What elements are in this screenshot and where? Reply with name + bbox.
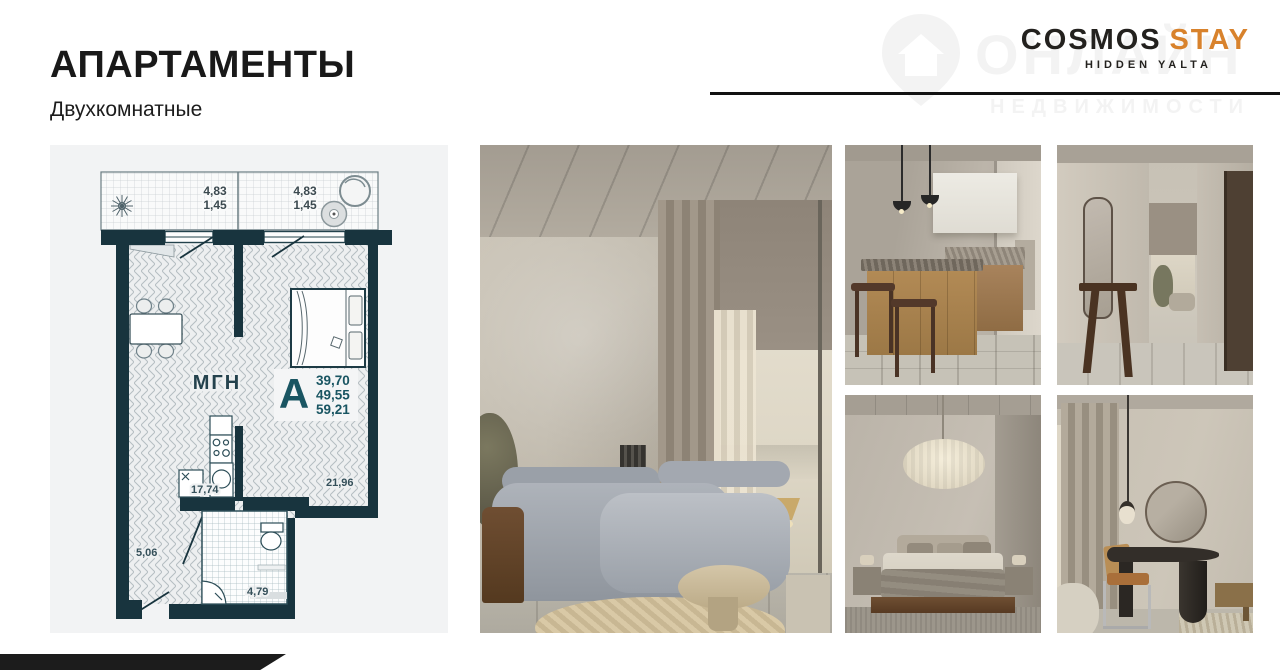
stool-leg: [931, 307, 935, 373]
blanket: [881, 569, 1005, 599]
bed-platform: [871, 597, 1015, 613]
round-mirror: [1145, 481, 1207, 543]
page-title: АПАРТАМЕНТЫ: [50, 44, 355, 87]
balcony-table-icon: [322, 202, 347, 227]
pouf: [786, 575, 830, 633]
hallway-photo: [1057, 145, 1253, 385]
brand-accent: STAY: [1169, 24, 1250, 56]
brand-tagline: HIDDEN YALTA: [1021, 59, 1250, 71]
pendant-cord: [1127, 395, 1129, 503]
corner-ribbon: [0, 654, 286, 670]
desk: [1107, 547, 1219, 562]
kitchen-area-label: 17,74: [191, 484, 219, 496]
area-value-1: 39,70: [316, 373, 350, 388]
page-subtitle: Двухкомнатные: [50, 98, 202, 122]
bench-leg: [1243, 607, 1249, 621]
chair-frame: [1148, 585, 1151, 629]
balcony-right-area: 4,83: [293, 184, 317, 198]
bedroom-photo: [845, 395, 1041, 633]
area-value-3: 59,21: [316, 402, 350, 417]
side-table: [482, 507, 524, 603]
unit-info-panel: А 39,70 49,55 59,21: [274, 369, 358, 421]
bar-stool: [851, 283, 895, 291]
watermark-pin-icon: [878, 12, 964, 113]
chair-frame: [1103, 626, 1151, 629]
kitchen-ceiling: [845, 145, 1041, 161]
console-table: [1079, 283, 1137, 291]
coffee-table-leg: [708, 597, 738, 631]
bathroom-area-label: 4,79: [247, 586, 268, 598]
room-label-mgn: МГН: [193, 372, 241, 394]
desk-side-panel: [1119, 561, 1133, 617]
pendant-light: [1119, 501, 1135, 524]
entry-door: [1224, 171, 1253, 371]
brand-primary: COSMOS: [1021, 24, 1162, 56]
paper-lantern-lamp: [903, 439, 985, 489]
stool-leg: [895, 307, 899, 377]
nightstand-right: [1005, 567, 1033, 595]
marble-countertop: [861, 259, 983, 271]
brand-logo: COSMOS STAY HIDDEN YALTA: [1021, 24, 1250, 71]
floor-plan-drawing: А 39,70 49,55 59,21 4,83 1,45 4,83 1,45 …: [50, 145, 448, 633]
brand-logo-text: COSMOS STAY: [1021, 24, 1250, 57]
area-value-2: 49,55: [316, 388, 350, 403]
bulb: [927, 203, 932, 208]
chair-frame: [1103, 581, 1106, 629]
floor-plan: А 39,70 49,55 59,21 4,83 1,45 4,83 1,45 …: [50, 145, 448, 633]
living-room-photo: [480, 145, 832, 633]
bench: [1215, 583, 1253, 607]
hall-area-label: 5,06: [136, 547, 157, 559]
balcony: [101, 172, 378, 230]
far-curtain: [1149, 203, 1197, 255]
work-area-photo: [1057, 395, 1253, 633]
pendant-cord: [901, 145, 903, 201]
desk-leg-cylinder: [1179, 561, 1207, 623]
stool-leg: [855, 291, 859, 357]
balcony-left-depth: 1,45: [203, 198, 227, 212]
balcony-chair-icon: [340, 176, 370, 206]
toilet-icon: [261, 523, 283, 550]
lower-cabinet: [977, 265, 1023, 331]
table-lamp-right: [1012, 555, 1026, 565]
desk-chair-seat: [1107, 573, 1149, 585]
pendant-cord: [929, 145, 931, 195]
balcony-right-depth: 1,45: [293, 198, 317, 212]
brochure-page: ОНЛАЙН НЕДВИЖИМОСТИ АПАРТАМЕНТЫ Двухкомн…: [0, 0, 1280, 670]
bathroom: [202, 511, 287, 604]
bulb: [899, 209, 904, 214]
bar-stool: [891, 299, 937, 307]
far-armchair: [1169, 293, 1195, 311]
bath-shelf: [258, 565, 285, 570]
unit-letter: А: [279, 370, 309, 417]
balcony-left-area: 4,83: [203, 184, 227, 198]
header-divider: [710, 92, 1280, 95]
pendant-cord: [942, 395, 944, 441]
nightstand-left: [853, 567, 881, 595]
living-area-label: 21,96: [326, 477, 354, 489]
kitchen-photo: [845, 145, 1041, 385]
hallway-ceiling: [1057, 145, 1253, 163]
bed: [291, 289, 365, 367]
table-lamp-left: [860, 555, 874, 565]
upper-cabinet: [933, 173, 1017, 233]
watermark-text-2: НЕДВИЖИМОСТИ: [990, 96, 1250, 119]
armchair: [1057, 583, 1099, 633]
